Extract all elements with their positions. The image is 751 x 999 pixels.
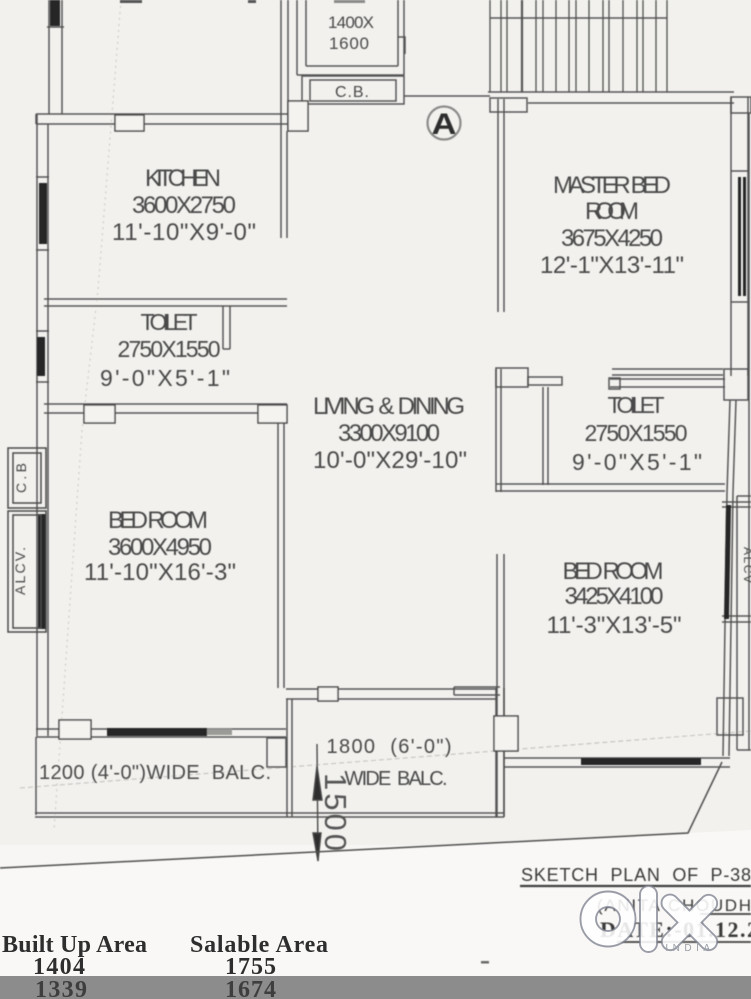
svg-text:1400X: 1400X	[328, 13, 374, 32]
svg-text:3425X4100: 3425X4100	[565, 583, 664, 610]
svg-text:1339: 1339	[35, 977, 87, 999]
svg-text:11'-10"X16'-3": 11'-10"X16'-3"	[84, 559, 236, 586]
svg-text:1674: 1674	[225, 977, 276, 999]
svg-text:BED ROOM: BED ROOM	[108, 507, 208, 534]
svg-text:C.B: C.B	[13, 463, 29, 493]
svg-text:12'-1"X13'-11": 12'-1"X13'-11"	[540, 252, 684, 279]
svg-text:WIDE BALC.: WIDE BALC.	[345, 768, 448, 790]
svg-text:INDIA: INDIA	[665, 943, 714, 954]
svg-text:ROOM: ROOM	[585, 198, 639, 225]
svg-text:BED ROOM: BED ROOM	[563, 558, 664, 585]
svg-text:SKETCH PLAN OF P-38: SKETCH PLAN OF P-38	[521, 865, 751, 885]
svg-text:3675X4250: 3675X4250	[561, 225, 663, 252]
svg-text:3600X4950: 3600X4950	[108, 534, 212, 561]
svg-text:KITCHEN: KITCHEN	[145, 165, 221, 192]
svg-text:2750X1550: 2750X1550	[118, 336, 221, 362]
svg-text:LIVING & DINING: LIVING & DINING	[313, 393, 465, 420]
svg-text:11'-10"X9'-0": 11'-10"X9'-0"	[112, 219, 256, 246]
svg-text:11'-3"X13'-5": 11'-3"X13'-5"	[547, 612, 682, 639]
svg-text:10'-0"X29'-10": 10'-0"X29'-10"	[313, 447, 467, 474]
svg-text:3600X2750: 3600X2750	[132, 192, 236, 219]
svg-text:TOILET: TOILET	[608, 392, 665, 418]
svg-text:TOILET: TOILET	[141, 309, 198, 335]
svg-text:2750X1550: 2750X1550	[585, 420, 688, 446]
svg-text:A: A	[432, 108, 457, 141]
svg-text:C.B.: C.B.	[335, 84, 369, 101]
svg-text:ALCV: ALCV	[741, 547, 751, 583]
svg-text:1200 (4'-0")WIDE BALC.: 1200 (4'-0")WIDE BALC.	[39, 762, 271, 784]
svg-text:MASTER BED: MASTER BED	[553, 172, 671, 199]
svg-text:1600: 1600	[329, 34, 369, 53]
svg-text:ALCV.: ALCV.	[12, 547, 28, 595]
svg-text:3300X9100: 3300X9100	[338, 420, 440, 447]
